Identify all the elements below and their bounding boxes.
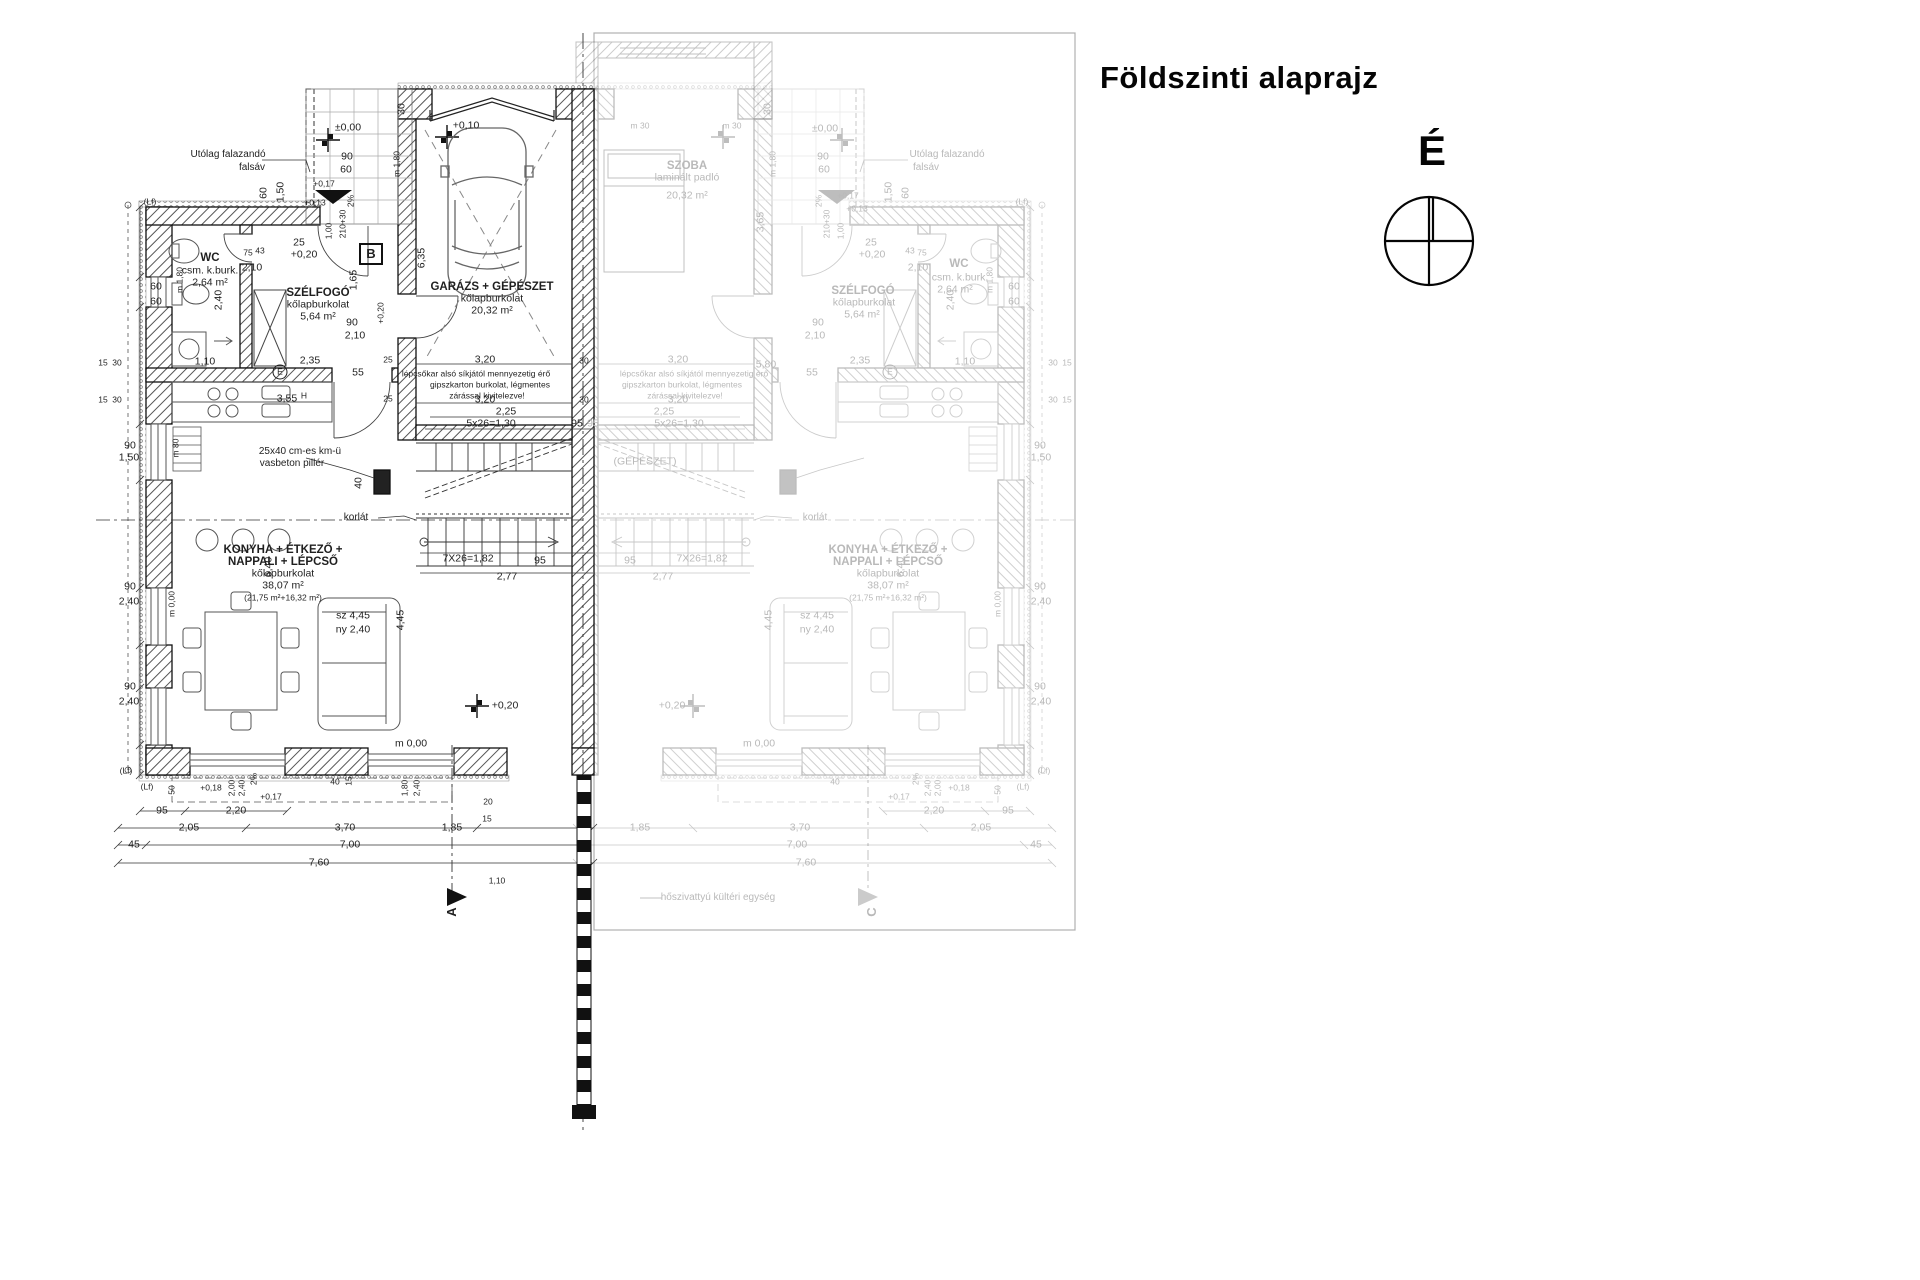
dimension-label: 4,45 (763, 610, 774, 630)
note-pillar-1: 25x40 cm-es km-ü (259, 447, 341, 458)
room-label-konyha2: NAPPALI + LÉPCSŐ (228, 556, 338, 568)
level-szelfogo: +0,20 (291, 249, 318, 260)
dimension-label: 95 (587, 418, 599, 429)
dimension-label: 30 (1048, 359, 1057, 368)
dimension-label: 5x26=1,30 (654, 418, 703, 429)
room-label-konyha: KONYHA + ÉTKEZŐ + (223, 544, 342, 556)
dimension-label: 1,85 (630, 822, 650, 833)
plan-title: Földszinti alaprajz (1100, 60, 1378, 96)
dimension-label: 75 (243, 249, 252, 258)
dimension-label: 3,20 (668, 394, 688, 405)
dimension-label: m 30 (631, 122, 650, 131)
section-a: A (445, 907, 459, 916)
dimension-label: 40 (353, 477, 364, 489)
garage-maneuver-lines (425, 130, 556, 360)
dimension-label: 2,00 (228, 780, 237, 797)
dimension-label: 2,20 (924, 805, 944, 816)
dimension-label: 3,20 (475, 394, 495, 405)
dimension-label: 2,40 (213, 290, 224, 310)
dimension-label: +0,13 (304, 199, 326, 208)
dimension-label: 30 (579, 396, 588, 405)
dimension-label: 2,10 (908, 262, 928, 273)
room-area-szelfogo: 5,64 m² (300, 311, 336, 322)
dimension-label: csm. k.burk. (932, 272, 989, 283)
room-finish-garazs: kőlapburkolat (461, 293, 523, 304)
dimension-label: 3,20 (475, 354, 495, 365)
dimension-label: 4,45 (395, 610, 406, 630)
dimension-label: 7X26=1,82 (442, 553, 493, 564)
dimension-label: 7,60 (796, 857, 816, 868)
dimension-label: m 80 (172, 439, 181, 458)
dimension-label: (Lf) (144, 198, 157, 207)
dimension-label: 2,25 (654, 406, 674, 417)
dimension-label: 60 (150, 296, 162, 307)
dimension-label: 25 (865, 237, 877, 248)
dimension-label: 30 (762, 103, 773, 115)
room-area-wc: 2,64 m² (192, 277, 228, 288)
dimension-label: 2,40 (413, 780, 422, 797)
dimension-label: 210+30 (339, 210, 348, 239)
dimension-label: 1,50 (119, 452, 139, 463)
dimension-label: 60 (150, 281, 162, 292)
dimension-label: m 1,80 (176, 267, 185, 293)
dimension-label: WC (949, 258, 968, 270)
dimension-label: 1,00 (837, 223, 846, 240)
dimension-label: kőlapburkolat (857, 568, 919, 579)
floor-plan-drawing (0, 0, 1920, 1280)
floor-plan-sheet: Földszinti alaprajz É WCcsm. k.burk.2,64… (0, 0, 1920, 1280)
dimension-label: 3,70 (790, 822, 810, 833)
symbol-e: E (273, 365, 288, 380)
dimension-label: ±0,00 (812, 123, 838, 134)
dimension-label: 2,77 (497, 571, 517, 582)
dimension-label: 7,60 (309, 857, 329, 868)
dimension-label: SZÉLFOGÓ (831, 285, 894, 297)
dimension-label: 7X26=1,82 (676, 553, 727, 564)
dimension-label: +0,18 (948, 784, 970, 793)
dimension-label: korlát (803, 513, 827, 524)
dimension-label: NAPPALI + LÉPCSŐ (833, 556, 943, 568)
dimension-label: 40 (330, 778, 339, 787)
dimension-label: 30 (112, 396, 121, 405)
boundary-marker-end (572, 1105, 596, 1119)
dimension-label: lépcsőkar alsó síkjától mennyezetig érő (620, 370, 768, 379)
dimension-label: 95 (624, 555, 636, 566)
level-garage: +0,10 (453, 120, 480, 131)
dimension-label: 210+30 (823, 210, 832, 239)
dimension-label: 2,40 (1031, 696, 1051, 707)
dimension-label: 1,10 (955, 356, 975, 367)
note-falsav-1: Utólag falazandó (190, 150, 265, 161)
dimension-label: 3,70 (335, 822, 355, 833)
dimension-label: 6,40 (263, 557, 274, 577)
garage-door (430, 98, 554, 121)
dimension-label: 1,80 (401, 780, 410, 797)
dimension-label: 2,10 (345, 330, 365, 341)
dimension-label: +0,17 (837, 192, 859, 201)
dimension-label: 90 (1034, 581, 1046, 592)
section-c: C (865, 907, 879, 916)
dimension-label: m 0,00 (994, 591, 1003, 617)
note-heatpump: hőszivattyú kültéri egység (661, 893, 776, 904)
dimension-label: +0,17 (313, 180, 335, 189)
dimension-label: 7,00 (340, 839, 360, 850)
north-indicator: É (1382, 130, 1482, 330)
room-label-szelfogo: SZÉLFOGÓ (286, 287, 349, 299)
room-finish-wc: csm. k.burk. (182, 265, 239, 276)
dimension-label: (Lf) (1016, 198, 1029, 207)
dimension-label: 3,65 (755, 212, 766, 232)
dimension-label: 3,55 (277, 393, 297, 404)
dimension-label: 15 (1062, 359, 1071, 368)
dimension-label: 1,10 (489, 877, 506, 886)
dimension-label: 15 (1062, 396, 1071, 405)
dimension-label: 5,80 (756, 359, 776, 370)
dimension-label: 2,40 (945, 290, 956, 310)
room-label-garazs: GARÁZS + GÉPÉSZET (430, 281, 553, 293)
dimension-label: gipszkarton burkolat, légmentes (622, 381, 742, 390)
dimension-label: ny 2,40 (336, 624, 370, 635)
dimension-label: 1,10 (195, 356, 215, 367)
dimension-label: 2,10 (805, 330, 825, 341)
dimension-label: 38,07 m² (867, 580, 908, 591)
dimension-label: 30 (579, 357, 588, 366)
dimension-label: (Lf) (1038, 767, 1051, 776)
dimension-label: +0,17 (888, 793, 910, 802)
dimension-label: 90 (124, 681, 136, 692)
dimension-label: 95 (534, 555, 546, 566)
dimension-label: 75 (917, 249, 926, 258)
dimension-label: 1,85 (442, 822, 462, 833)
dimension-label: m 1,80 (986, 267, 995, 293)
dimension-label: 40 (830, 778, 839, 787)
dimension-label: 2,10 (242, 262, 262, 273)
boundary-marker-bar (577, 775, 591, 1105)
dimension-label: kőlapburkolat (833, 297, 895, 308)
dimension-label: 2,40 (119, 596, 139, 607)
dimension-label: 60 (900, 187, 911, 199)
dimension-label: 90 (812, 317, 824, 328)
dimension-label: 2% (347, 195, 356, 207)
note-gipszkarton-1: lépcsőkar alsó síkjától mennyezetig érő (402, 370, 550, 379)
dimension-label: 2,35 (300, 355, 320, 366)
dimension-label: 55 (352, 367, 364, 378)
dimension-label: (Lf) (120, 767, 133, 776)
dimension-label: 1,50 (275, 182, 286, 202)
dimension-label: 95 (156, 805, 168, 816)
dimension-label: 2% (912, 773, 921, 785)
dimension-label: 50 (994, 785, 1003, 794)
dimension-label: 30 (396, 103, 407, 115)
north-label: É (1382, 130, 1482, 172)
room-label-wc: WC (200, 252, 219, 264)
dimension-label: 55 (806, 367, 818, 378)
dimension-label: 43 (905, 247, 914, 256)
dimension-label: 95 (571, 418, 583, 429)
dimension-label: 6,35 (416, 248, 427, 268)
dimension-label: 15 (345, 776, 354, 785)
dimension-label: +0,20 (659, 700, 686, 711)
dimension-label: 90 (346, 317, 358, 328)
dimension-label: +0,13 (846, 205, 868, 214)
dimension-label: +0,20 (377, 302, 386, 324)
room-finish-szoba: laminált padló (655, 172, 720, 183)
dimension-label: 15 (482, 815, 491, 824)
dimension-label: falsáv (913, 163, 939, 174)
dimension-label: 2,40 (1031, 596, 1051, 607)
dimension-label: 50 (168, 785, 177, 794)
dimension-label: (21,75 m²+16,32 m²) (849, 594, 927, 603)
dimension-label: 1,50 (1031, 452, 1051, 463)
dimension-label: 60 (1008, 281, 1020, 292)
dimension-label: 2,00 (934, 780, 943, 797)
dimension-label: 25 (383, 356, 392, 365)
dimension-label: 5x26=1,30 (466, 418, 515, 429)
dimension-label: 45 (128, 839, 140, 850)
room-area-konyha: 38,07 m² (262, 580, 303, 591)
dimension-label: ny 2,40 (800, 624, 834, 635)
dimension-label: +0,20 (859, 249, 886, 260)
dimension-label: sz 4,45 (336, 610, 370, 621)
dimension-label: H (301, 392, 307, 401)
dimension-label: 25 (383, 395, 392, 404)
dimension-label: 90 (1034, 440, 1046, 451)
level-living: +0,20 (492, 700, 519, 711)
dimension-label: 2,40 (238, 780, 247, 797)
dimension-label: 2,25 (496, 406, 516, 417)
car (441, 128, 533, 296)
dimension-label: 1,65 (348, 270, 359, 290)
compass-icon (1382, 194, 1482, 294)
dimension-label: 30 (112, 359, 121, 368)
room-area-garazs: 20,32 m² (471, 305, 512, 316)
dimension-label: m 1,80 (769, 151, 778, 177)
dimension-label: sz 4,45 (800, 610, 834, 621)
dimension-label: 60 (258, 187, 269, 199)
dimension-label: 30 (1048, 396, 1057, 405)
dimension-label: 2,05 (179, 822, 199, 833)
dimension-label: 25 (293, 237, 305, 248)
dimension-label: 90 (124, 440, 136, 451)
dimension-label: 2,20 (226, 805, 246, 816)
dimension-label: 3,20 (668, 354, 688, 365)
section-b: B (366, 247, 375, 261)
dimension-label: +0,17 (260, 793, 282, 802)
dimension-label: 90 (124, 581, 136, 592)
room-finish-konyha: kőlapburkolat (252, 568, 314, 579)
dimension-label: 1,50 (883, 182, 894, 202)
dimension-label: 2% (250, 773, 259, 785)
note-pillar-2: vasbeton pillér (260, 459, 324, 470)
dimension-label: 95 (1002, 805, 1014, 816)
dimension-label: 60 (1008, 296, 1020, 307)
dimension-label: 60 (818, 164, 830, 175)
level-porch: ±0,00 (335, 122, 361, 133)
dimension-label: (Lf) (1017, 783, 1030, 792)
note-korlat: korlát (344, 513, 368, 524)
section-a-arrow (447, 888, 467, 906)
dimension-label: 43 (255, 247, 264, 256)
dimension-label: 2% (815, 195, 824, 207)
symbol-e-faded: E (883, 365, 898, 380)
dimension-label: m 0,00 (168, 591, 177, 617)
dimension-label: 90 (1034, 681, 1046, 692)
dimension-label: 2,40 (119, 696, 139, 707)
room-area-szoba: 20,32 m² (666, 190, 707, 201)
dimension-label: 5,64 m² (844, 309, 880, 320)
dimension-label: 20 (483, 798, 492, 807)
dimension-label: 2,05 (971, 822, 991, 833)
dimension-label: KONYHA + ÉTKEZŐ + (828, 544, 947, 556)
dimension-label: m 30 (723, 122, 742, 131)
dimension-label: 15 (98, 359, 107, 368)
note-gipszkarton-2: gipszkarton burkolat, légmentes (430, 381, 550, 390)
unit-a-dark-only (360, 33, 596, 1135)
level-terrace: m 0,00 (395, 738, 427, 749)
dimension-label: 1,00 (325, 223, 334, 240)
dimension-label: Utólag falazandó (909, 150, 984, 161)
dimension-label: 2,40 (924, 780, 933, 797)
room-area-konyha2: (21,75 m²+16,32 m²) (244, 594, 322, 603)
dimension-label: (Lf) (141, 783, 154, 792)
room-finish-szelfogo: kőlapburkolat (287, 299, 349, 310)
dimension-label: m 1,80 (393, 151, 402, 177)
dimension-label: 6,40 (895, 557, 906, 577)
dimension-label: m 0,00 (743, 738, 775, 749)
dimension-label: 15 (98, 396, 107, 405)
dimension-label: +0,18 (200, 784, 222, 793)
dimension-label: 2,35 (850, 355, 870, 366)
dimension-label: (GÉPÉSZET) (613, 456, 676, 467)
dimension-label: 7,00 (787, 839, 807, 850)
dimension-label: 90 (817, 151, 829, 162)
dimension-label: 2,77 (653, 571, 673, 582)
note-falsav-2: falsáv (239, 163, 265, 174)
dimension-label: 60 (340, 164, 352, 175)
dimension-label: 45 (1030, 839, 1042, 850)
room-label-szoba: SZOBA (667, 160, 707, 172)
dimension-label: 90 (341, 151, 353, 162)
